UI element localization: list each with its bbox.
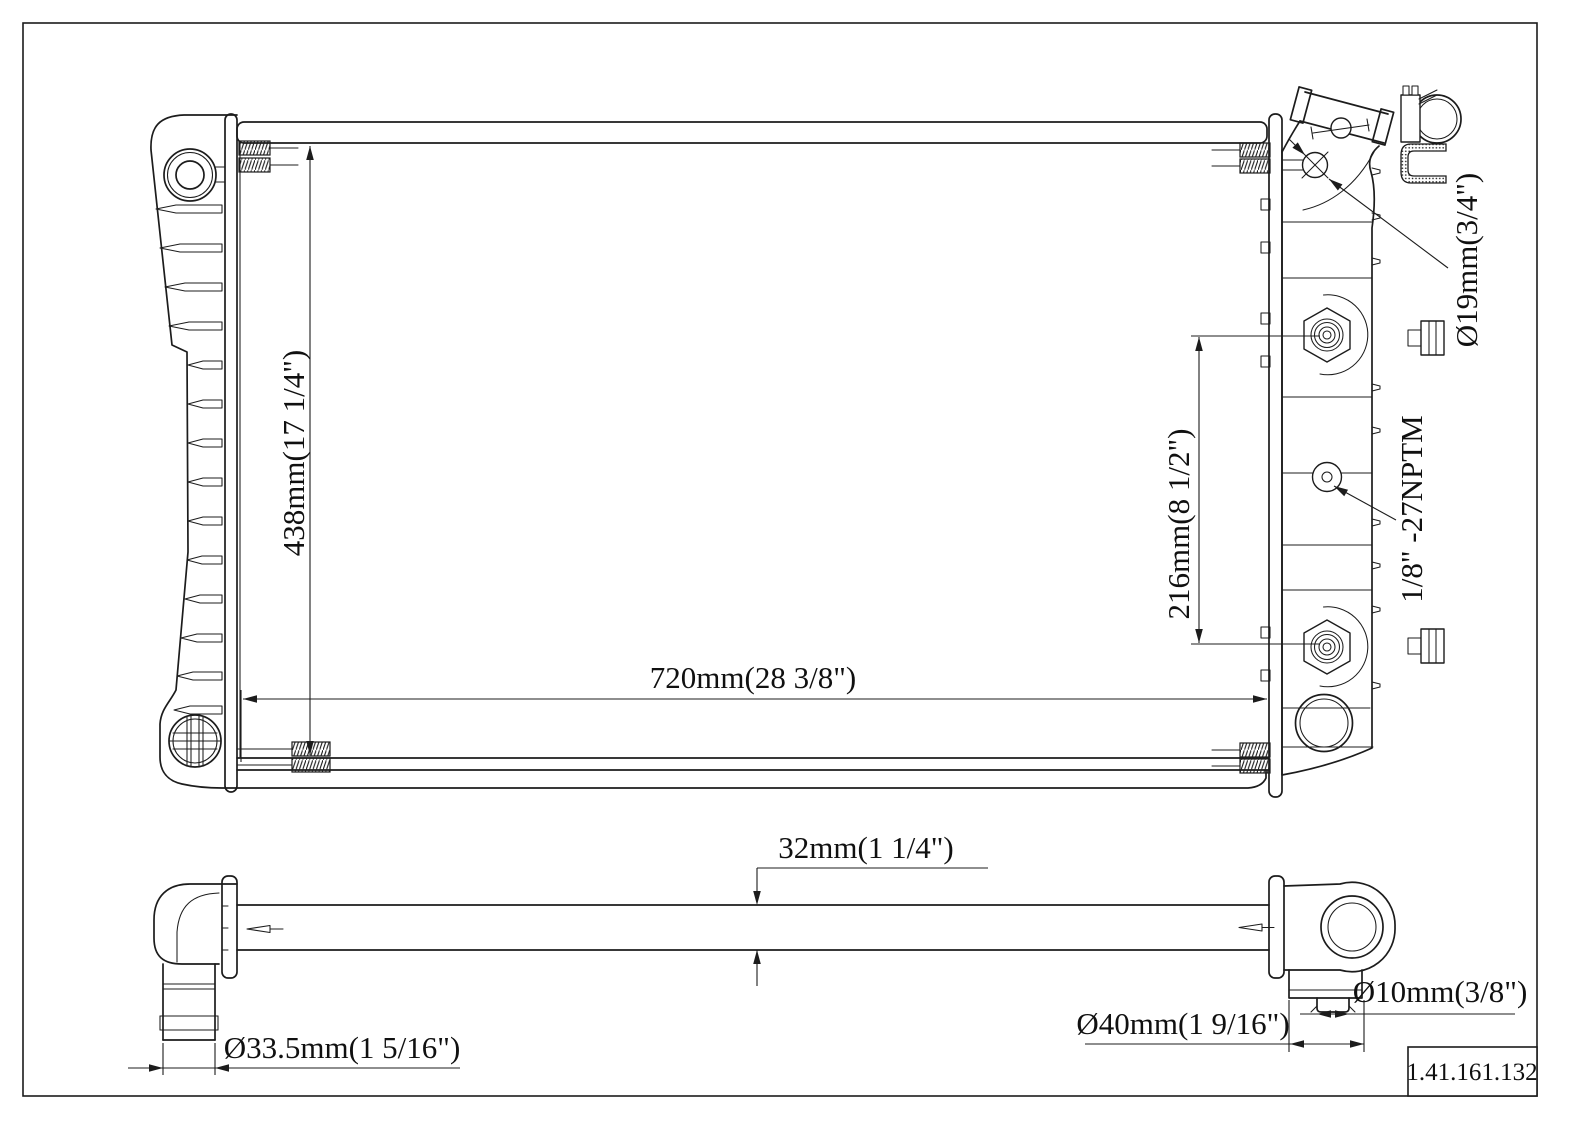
vent-hole — [1283, 152, 1328, 178]
stud-bottom-right-2 — [1240, 759, 1270, 773]
left-filler-opening — [164, 149, 225, 201]
dim-oil-cooler-thread: 1/8" -27NPTM — [1394, 415, 1429, 602]
drain-stub — [1317, 998, 1349, 1012]
oil-cooler-fitting-top — [1304, 295, 1368, 375]
dim-drain-diameter: Ø10mm(3/8") — [1353, 974, 1528, 1009]
flow-arrow-right — [1239, 924, 1262, 931]
side-dimensions: 32mm(1 1/4") Ø33.5mm(1 5/16") Ø40mm(1 9/… — [128, 830, 1527, 1075]
dim-core-width: 720mm(28 3/8") — [650, 660, 856, 695]
left-mount-strip — [225, 114, 237, 792]
dim-inlet-diameter: Ø19mm(3/4") — [1449, 173, 1484, 348]
drain-housing — [1289, 970, 1362, 998]
sheet-border — [23, 23, 1537, 1096]
right-tank — [1212, 87, 1394, 797]
stud-top-left-2 — [239, 158, 270, 172]
lower-outlet-opening — [1296, 695, 1353, 752]
left-outlet-flange — [169, 715, 221, 767]
plug-icon-bottom — [1408, 629, 1444, 663]
right-mount-strip — [1269, 114, 1282, 797]
outlet-elbow — [154, 884, 237, 1040]
flow-arrow-left — [247, 926, 270, 933]
dim-core-thickness: 32mm(1 1/4") — [778, 830, 953, 865]
stud-bottom-right — [1240, 743, 1270, 757]
title-block: 1.41.161.132 — [1406, 1047, 1537, 1096]
dim-outlet-hose-diameter: Ø33.5mm(1 5/16") — [224, 1030, 461, 1065]
dim-fitting-spacing: 216mm(8 1/2") — [1161, 429, 1196, 620]
dim-inlet-hose-diameter: Ø40mm(1 9/16") — [1076, 1006, 1289, 1041]
stud-top-right — [1240, 143, 1270, 157]
top-bar — [237, 122, 1267, 143]
radiator-technical-drawing: 438mm(17 1/4") 720mm(28 3/8") 216mm(8 1/… — [0, 0, 1588, 1122]
oil-cooler-fitting-bottom — [1304, 607, 1368, 687]
filler-neck — [1290, 87, 1393, 145]
drawing-sheet: 438mm(17 1/4") 720mm(28 3/8") 216mm(8 1/… — [0, 0, 1588, 1122]
part-number: 1.41.161.132 — [1406, 1059, 1537, 1086]
side-left-bracket — [222, 876, 237, 978]
hose-clamp-icon — [1401, 86, 1461, 143]
hose-cap-icon — [1401, 144, 1446, 183]
front-dimensions: 438mm(17 1/4") 720mm(28 3/8") 216mm(8 1/… — [241, 139, 1484, 762]
side-view: 32mm(1 1/4") Ø33.5mm(1 5/16") Ø40mm(1 9/… — [128, 830, 1527, 1075]
front-view: 438mm(17 1/4") 720mm(28 3/8") 216mm(8 1/… — [151, 86, 1484, 797]
plug-icon-top — [1408, 321, 1444, 355]
stud-top-right-2 — [1240, 159, 1270, 173]
dim-overall-height: 438mm(17 1/4") — [276, 350, 311, 556]
